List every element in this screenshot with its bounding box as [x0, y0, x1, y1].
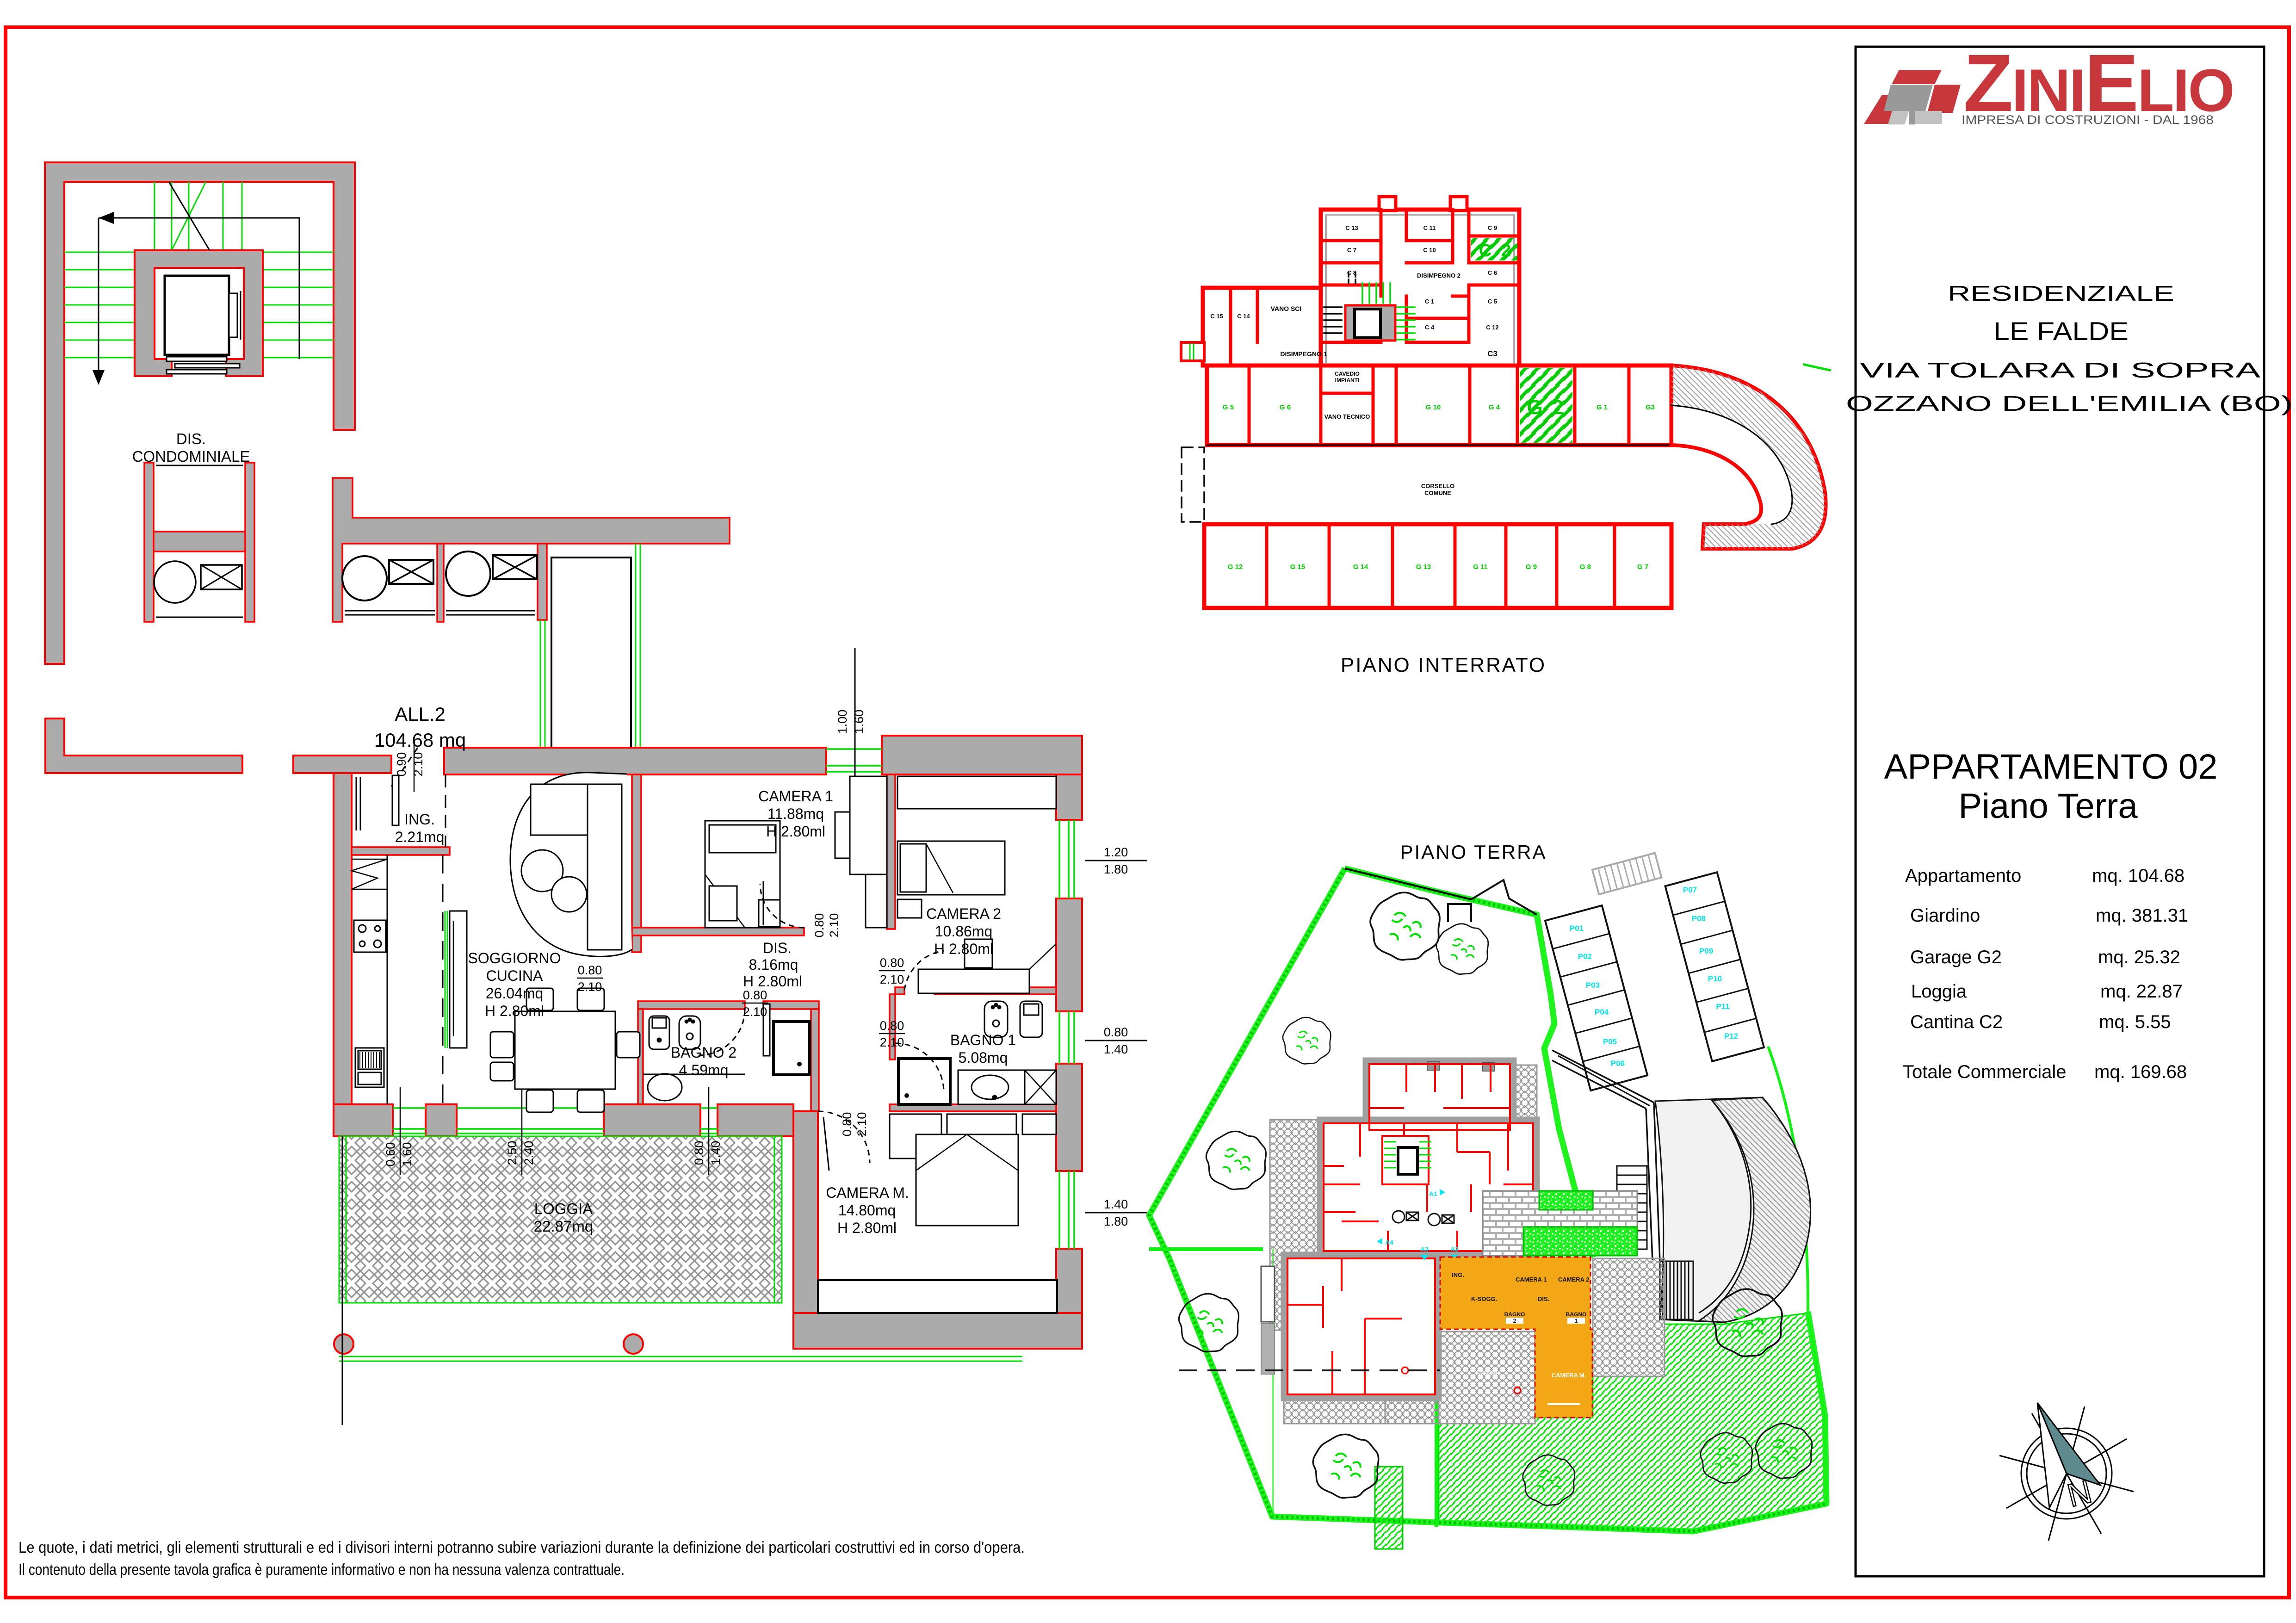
svg-text:ALL.2: ALL.2	[395, 703, 446, 725]
svg-text:P12: P12	[1724, 1032, 1738, 1041]
svg-text:mq. 104.68: mq. 104.68	[2092, 866, 2185, 886]
svg-text:G 15: G 15	[1290, 563, 1306, 571]
svg-text:VIA TOLARA DI SOPRA: VIA TOLARA DI SOPRA	[1860, 358, 2261, 382]
svg-text:2.10: 2.10	[578, 980, 602, 994]
svg-text:0.80: 0.80	[692, 1141, 706, 1165]
svg-text:2.10: 2.10	[827, 913, 841, 938]
svg-text:G 8: G 8	[1580, 563, 1591, 571]
svg-text:VANO TECNICO: VANO TECNICO	[1324, 413, 1370, 420]
svg-text:C 1: C 1	[1425, 298, 1434, 305]
svg-text:DISIMPEGNO 2: DISIMPEGNO 2	[1417, 272, 1461, 279]
svg-text:2.10: 2.10	[880, 1035, 904, 1049]
svg-text:0.90: 0.90	[395, 752, 408, 777]
svg-text:Garage G2: Garage G2	[1910, 947, 2002, 967]
svg-text:2.21mq: 2.21mq	[395, 829, 445, 845]
svg-text:C 4: C 4	[1425, 324, 1435, 331]
svg-text:BAGNO 1: BAGNO 1	[950, 1032, 1016, 1048]
svg-text:0.80: 0.80	[840, 1112, 854, 1137]
svg-text:G 1: G 1	[1597, 403, 1608, 411]
svg-text:CAMERA M.: CAMERA M.	[1552, 1372, 1586, 1379]
svg-text:DIS.: DIS.	[763, 940, 792, 956]
svg-text:2.10: 2.10	[855, 1112, 869, 1137]
svg-text:2.40: 2.40	[522, 1141, 536, 1165]
svg-text:G 12: G 12	[1228, 563, 1243, 571]
svg-text:G 2: G 2	[1527, 396, 1566, 419]
svg-text:mq. 25.32: mq. 25.32	[2098, 947, 2180, 967]
svg-text:ING.: ING.	[404, 811, 435, 828]
svg-text:BAGNO 2: BAGNO 2	[671, 1044, 736, 1061]
svg-text:P04: P04	[1595, 1008, 1609, 1016]
svg-text:C 13: C 13	[1345, 224, 1358, 231]
svg-text:mq. 22.87: mq. 22.87	[2100, 981, 2183, 1002]
svg-text:C 15: C 15	[1210, 313, 1223, 320]
svg-text:Le quote, i dati metrici, gli: Le quote, i dati metrici, gli elementi s…	[19, 1539, 1025, 1556]
svg-text:P10: P10	[1708, 974, 1722, 983]
svg-text:Giardino: Giardino	[1910, 905, 1980, 926]
svg-text:BAGNO: BAGNO	[1566, 1311, 1587, 1318]
svg-text:P11: P11	[1716, 1002, 1729, 1011]
svg-text:Appartamento: Appartamento	[1905, 866, 2021, 886]
svg-text:CAMERA 1: CAMERA 1	[1516, 1276, 1547, 1283]
svg-text:G 7: G 7	[1637, 563, 1648, 571]
svg-text:A3: A3	[1420, 1245, 1429, 1253]
svg-text:0.80: 0.80	[812, 913, 826, 938]
svg-text:26.04mq: 26.04mq	[486, 985, 544, 1002]
svg-text:C 11: C 11	[1423, 224, 1436, 231]
svg-text:CAMERA 2: CAMERA 2	[1558, 1276, 1589, 1283]
svg-text:A2: A2	[1450, 1245, 1459, 1253]
svg-text:LE FALDE: LE FALDE	[1993, 316, 2129, 346]
svg-text:P03: P03	[1586, 981, 1600, 990]
svg-text:A4: A4	[1385, 1239, 1393, 1246]
svg-text:mq. 5.55: mq. 5.55	[2099, 1012, 2171, 1032]
svg-text:C3: C3	[1487, 349, 1498, 358]
svg-text:H 2.80ml: H 2.80ml	[934, 941, 993, 957]
svg-text:P02: P02	[1578, 952, 1592, 961]
svg-text:H 2.80ml: H 2.80ml	[743, 973, 802, 990]
svg-text:SOGGIORNO: SOGGIORNO	[468, 950, 561, 966]
svg-text:5.08mq: 5.08mq	[959, 1049, 1008, 1066]
svg-text:BAGNO: BAGNO	[1504, 1311, 1525, 1318]
svg-text:0.80: 0.80	[1104, 1025, 1128, 1039]
svg-text:RESIDENZIALE: RESIDENZIALE	[1948, 281, 2174, 305]
svg-text:14.80mq: 14.80mq	[838, 1202, 896, 1219]
svg-text:1.40: 1.40	[1104, 1042, 1128, 1056]
svg-text:Loggia: Loggia	[1476, 1368, 1498, 1375]
svg-text:2.10: 2.10	[743, 1005, 767, 1019]
svg-text:DISIMPEGNO 1: DISIMPEGNO 1	[1280, 350, 1327, 358]
svg-text:1.20: 1.20	[1104, 845, 1128, 859]
svg-text:P01: P01	[1570, 924, 1584, 933]
svg-text:K-SOGG.: K-SOGG.	[1471, 1295, 1497, 1302]
svg-text:1.40: 1.40	[709, 1141, 723, 1165]
svg-text:1.60: 1.60	[852, 710, 866, 734]
svg-text:G 13: G 13	[1416, 563, 1431, 571]
svg-text:COMUNE: COMUNE	[1424, 489, 1451, 496]
svg-text:G 14: G 14	[1353, 563, 1368, 571]
svg-text:0.80: 0.80	[743, 988, 767, 1002]
svg-text:C 14: C 14	[1237, 313, 1250, 320]
svg-text:22.87mq: 22.87mq	[534, 1218, 593, 1235]
svg-text:mq. 381.31: mq. 381.31	[2096, 905, 2188, 926]
svg-text:Piano Terra: Piano Terra	[1958, 787, 2138, 826]
svg-text:P09: P09	[1699, 947, 1713, 955]
svg-text:ING.: ING.	[1452, 1271, 1464, 1278]
svg-text:P05: P05	[1603, 1037, 1617, 1046]
svg-text:0.80: 0.80	[880, 1019, 904, 1033]
svg-text:APPARTAMENTO 02: APPARTAMENTO 02	[1884, 747, 2218, 787]
svg-text:G 5: G 5	[1223, 403, 1234, 411]
svg-text:2: 2	[1513, 1318, 1516, 1324]
svg-text:1.60: 1.60	[400, 1142, 414, 1167]
svg-text:1.80: 1.80	[1104, 862, 1128, 876]
svg-text:C 2: C 2	[1479, 241, 1513, 260]
svg-text:P08: P08	[1692, 914, 1706, 923]
svg-text:G 4: G 4	[1489, 403, 1500, 411]
svg-text:Il contenuto della presente ta: Il contenuto della presente tavola grafi…	[19, 1561, 625, 1579]
svg-text:C 5: C 5	[1488, 298, 1497, 305]
svg-text:P06: P06	[1611, 1059, 1625, 1068]
svg-text:PIANO INTERRATO: PIANO INTERRATO	[1341, 654, 1546, 676]
svg-text:C 10: C 10	[1423, 247, 1436, 254]
svg-text:G 11: G 11	[1473, 563, 1488, 571]
svg-text:P07: P07	[1683, 886, 1697, 894]
svg-text:CAVEDIO: CAVEDIO	[1335, 371, 1360, 377]
svg-text:A1: A1	[1429, 1190, 1437, 1197]
svg-text:2.50: 2.50	[505, 1141, 519, 1165]
svg-text:CAMERA 1: CAMERA 1	[758, 788, 833, 805]
svg-text:1.40: 1.40	[1104, 1197, 1128, 1211]
svg-text:0.80: 0.80	[578, 963, 602, 977]
svg-text:H 2.80ml: H 2.80ml	[766, 823, 825, 840]
svg-text:G3: G3	[1646, 403, 1655, 411]
svg-text:CAMERA M.: CAMERA M.	[826, 1184, 909, 1201]
svg-text:C 7: C 7	[1347, 247, 1356, 254]
svg-text:8.16mq: 8.16mq	[749, 956, 798, 973]
svg-text:DIS.: DIS.	[176, 430, 206, 447]
svg-text:104.68 mq: 104.68 mq	[374, 729, 466, 751]
svg-text:1.00: 1.00	[835, 710, 849, 734]
svg-text:H 2.80ml: H 2.80ml	[837, 1220, 897, 1236]
svg-text:LOGGIA: LOGGIA	[534, 1200, 593, 1217]
svg-text:2.10: 2.10	[880, 973, 904, 986]
svg-text:mq. 169.68: mq. 169.68	[2094, 1062, 2187, 1082]
svg-text:11.88mq: 11.88mq	[767, 805, 824, 822]
svg-text:Totale Commerciale: Totale Commerciale	[1903, 1062, 2066, 1082]
svg-text:2.10: 2.10	[411, 752, 425, 777]
svg-text:G 10: G 10	[1426, 403, 1441, 411]
svg-text:0.80: 0.80	[880, 956, 904, 970]
svg-text:DIS.: DIS.	[1538, 1295, 1549, 1302]
svg-text:C 9: C 9	[1488, 224, 1497, 231]
svg-text:4.59mq: 4.59mq	[679, 1062, 729, 1078]
svg-text:IMPIANTI: IMPIANTI	[1335, 377, 1360, 384]
svg-text:Cantina C2: Cantina C2	[1910, 1012, 2003, 1032]
svg-text:VANO SCI: VANO SCI	[1271, 305, 1302, 312]
svg-text:CAMERA 2: CAMERA 2	[926, 905, 1001, 922]
svg-text:G 9: G 9	[1526, 563, 1537, 571]
svg-text:0.60: 0.60	[384, 1142, 397, 1167]
svg-text:10.86mq: 10.86mq	[935, 923, 993, 940]
svg-text:G 6: G 6	[1280, 403, 1291, 411]
svg-text:C 12: C 12	[1486, 324, 1498, 331]
svg-text:IMPRESA DI COSTRUZIONI - DAL 1: IMPRESA DI COSTRUZIONI - DAL 1968	[1962, 113, 2214, 127]
svg-text:CORSELLO: CORSELLO	[1421, 483, 1454, 489]
svg-text:Loggia: Loggia	[1911, 981, 1967, 1002]
svg-text:1: 1	[1575, 1318, 1578, 1324]
svg-text:1.80: 1.80	[1104, 1214, 1128, 1228]
svg-text:PIANO TERRA: PIANO TERRA	[1400, 841, 1547, 863]
svg-text:H 2.80ml: H 2.80ml	[485, 1003, 544, 1019]
svg-text:OZZANO DELL'EMILIA (BO): OZZANO DELL'EMILIA (BO)	[1846, 391, 2293, 415]
svg-text:CUCINA: CUCINA	[486, 967, 543, 984]
svg-text:C 6: C 6	[1488, 269, 1497, 276]
